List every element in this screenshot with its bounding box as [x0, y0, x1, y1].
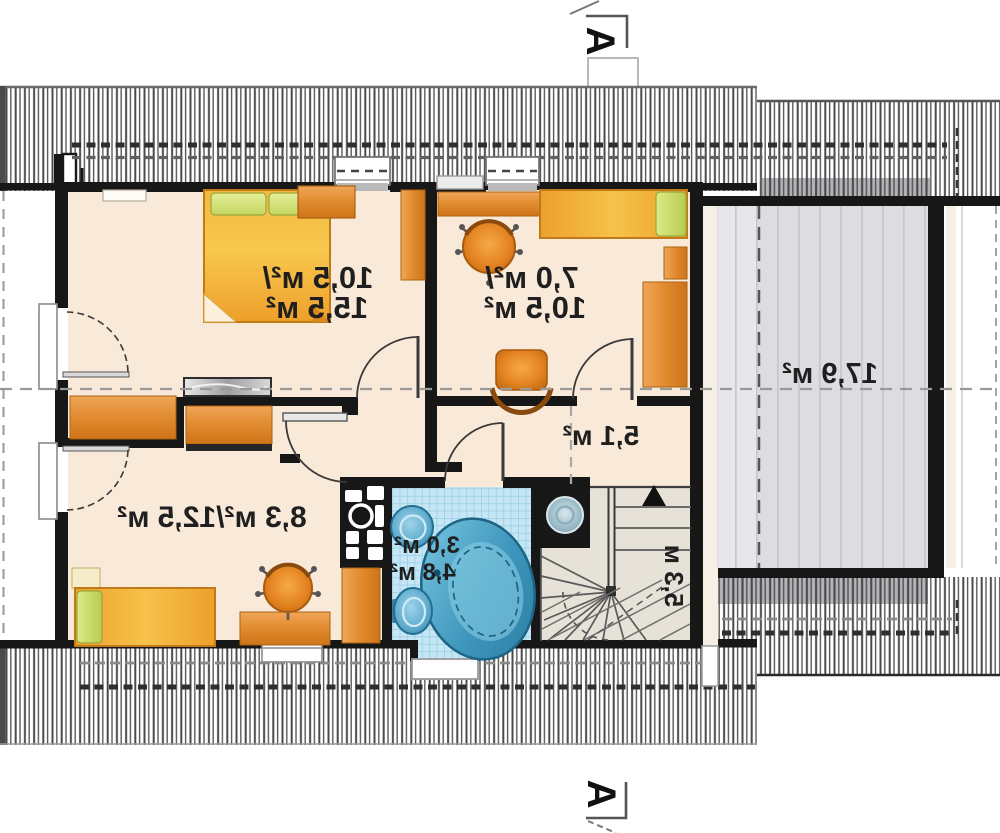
svg-text:17,9 м²: 17,9 м² — [782, 358, 878, 390]
svg-text:A: A — [579, 780, 623, 809]
svg-text:15,5 м²: 15,5 м² — [266, 290, 368, 325]
svg-text:10,5 м²: 10,5 м² — [484, 290, 586, 325]
svg-text:4,8 м²: 4,8 м² — [390, 559, 456, 586]
svg-text:5,3 м: 5,3 м — [659, 545, 689, 608]
svg-text:A: A — [578, 27, 622, 56]
svg-text:8,3 м²/12,5 м²: 8,3 м²/12,5 м² — [117, 501, 306, 534]
svg-text:3,0 м²: 3,0 м² — [394, 532, 460, 559]
svg-text:5,1 м²: 5,1 м² — [563, 420, 640, 451]
